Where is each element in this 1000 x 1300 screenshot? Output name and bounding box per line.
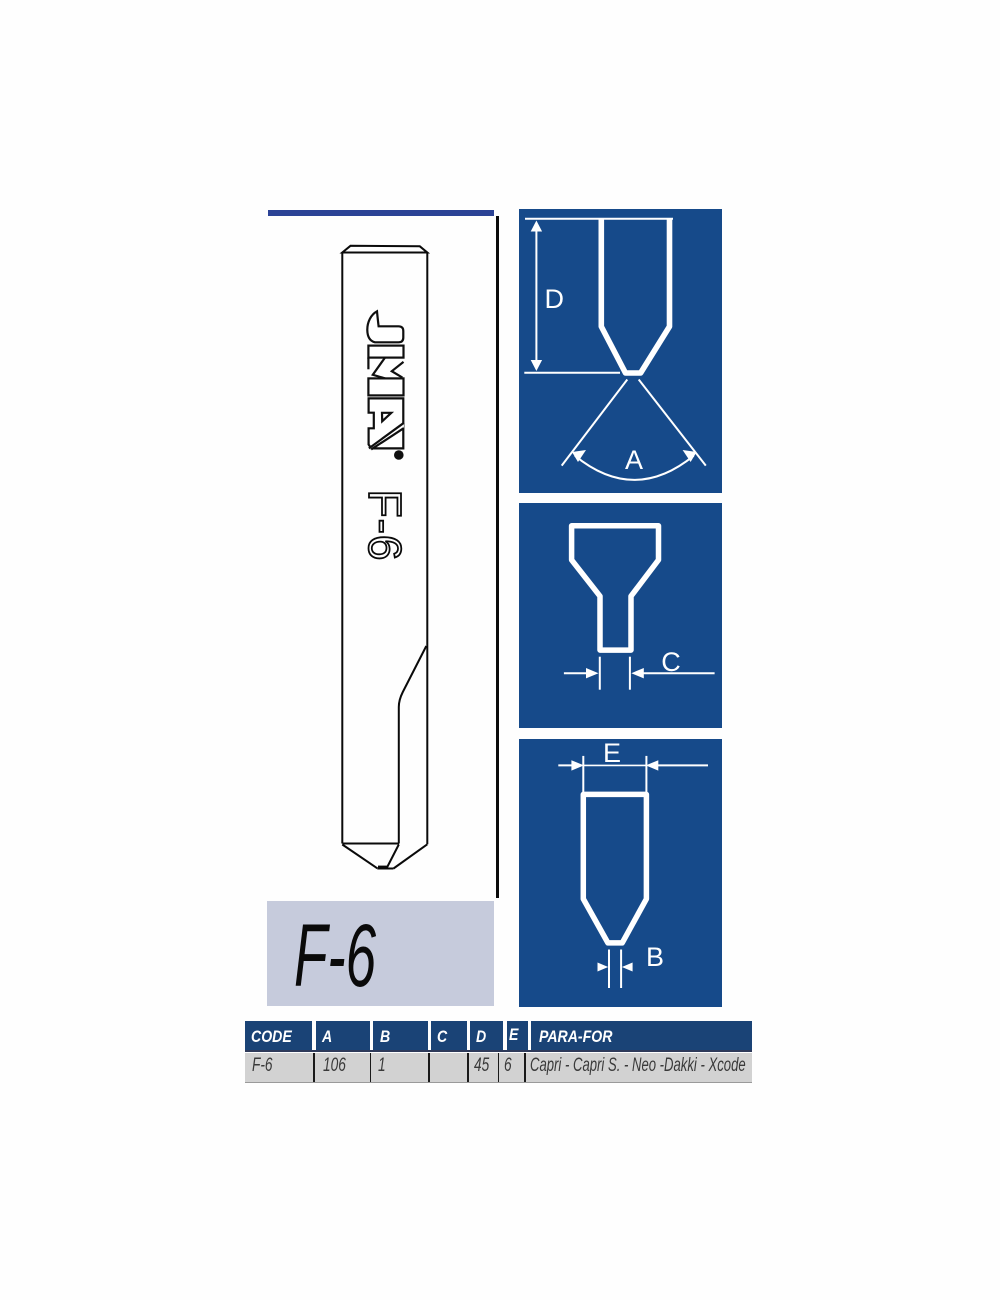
svg-text:E: E xyxy=(603,738,621,768)
svg-text:B: B xyxy=(646,942,664,972)
svg-text:C: C xyxy=(661,647,681,677)
svg-text:F-6: F-6 xyxy=(359,490,411,562)
svg-text:A: A xyxy=(625,445,643,475)
svg-text:D: D xyxy=(545,284,565,314)
